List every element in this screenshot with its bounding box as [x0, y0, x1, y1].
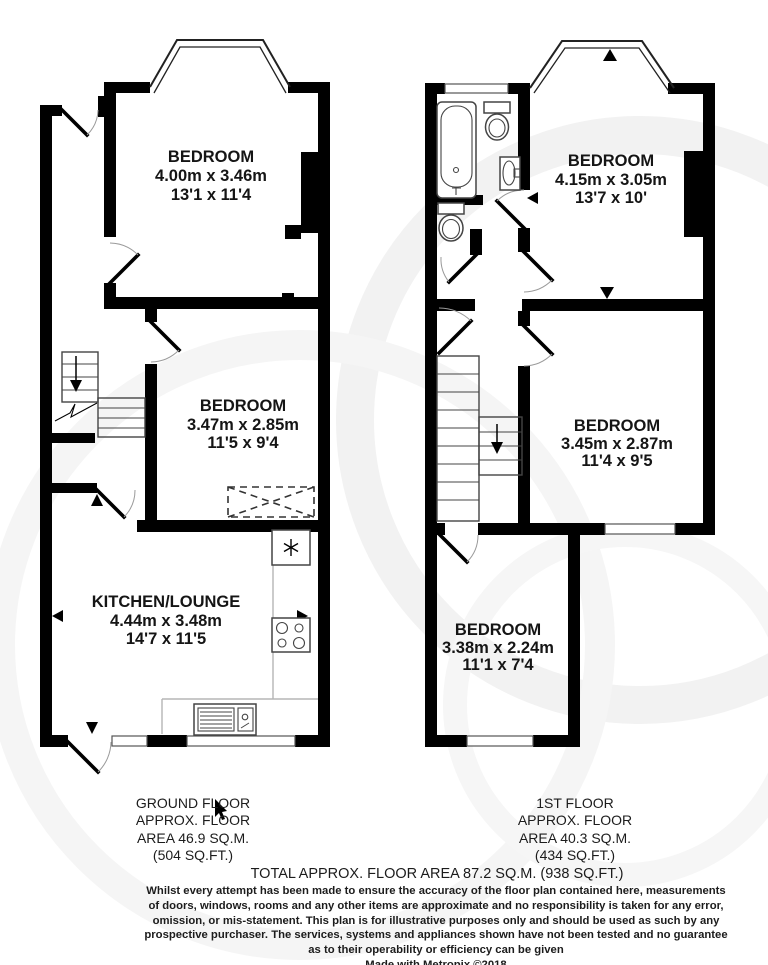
measure-marker-up: [603, 49, 617, 61]
disclaimer-line: as to their operability or efficiency ca…: [104, 943, 768, 958]
basin-icon: [500, 157, 520, 190]
floor-area-imperial: (504 SQ.FT.): [93, 847, 293, 864]
room-name: BEDROOM: [200, 397, 286, 415]
bay-window: [530, 41, 674, 93]
room-metric: 3.47m x 2.85m: [187, 416, 299, 434]
bedroom3-window: [467, 736, 533, 746]
fridge-icon: [272, 530, 310, 565]
landing-door: [439, 308, 471, 353]
bedroom2-door: [524, 326, 552, 366]
sink-icon: [194, 704, 256, 735]
room-imperial: 11'1 x 7'4: [462, 656, 534, 674]
floor-area-metric: AREA 40.3 SQ.M.: [475, 830, 675, 847]
total-area-label: TOTAL APPROX. FLOOR AREA 87.2 SQ.M. (938…: [117, 866, 757, 882]
room-name: BEDROOM: [455, 621, 541, 639]
kitchen-windows: [112, 736, 295, 746]
measure-marker-down: [600, 287, 614, 299]
room-imperial: 14'7 x 11'5: [126, 630, 206, 648]
wc-toilet-icon: [438, 203, 464, 241]
opening-marker-down: [86, 722, 98, 734]
wc-door: [441, 255, 476, 282]
room-name: BEDROOM: [168, 148, 254, 166]
room-imperial: 11'5 x 9'4: [207, 434, 279, 452]
disclaimer-line: of doors, windows, rooms and any other i…: [104, 899, 768, 914]
room-metric: 3.38m x 2.24m: [442, 639, 554, 657]
bathroom-window: [445, 84, 508, 93]
chimney-breast: [684, 151, 703, 237]
room-metric: 3.45m x 2.87m: [561, 435, 673, 453]
front-door: [62, 110, 98, 135]
ground-floor-plan: BEDROOM 4.00m x 3.46m 13'1 x 11'4 BEDROO…: [40, 40, 330, 772]
disclaimer-line: Whilst every attempt has been made to en…: [104, 884, 768, 899]
floor-title: 1ST FLOOR: [475, 795, 675, 812]
floor-area-imperial: (434 SQ.FT.): [475, 847, 675, 864]
floorplan-page: BEDROOM 4.00m x 3.46m 13'1 x 11'4 BEDROO…: [0, 0, 768, 965]
disclaimer-line: prospective purchaser. The services, sys…: [104, 928, 768, 943]
room-metric: 4.44m x 3.48m: [110, 612, 222, 630]
kitchen-exterior-door: [68, 722, 111, 772]
room-metric: 4.15m x 3.05m: [555, 171, 667, 189]
hob-icon: [272, 618, 310, 652]
floor-title: GROUND FLOOR: [93, 795, 293, 812]
bedroom3-door: [440, 535, 478, 562]
room-name: BEDROOM: [574, 417, 660, 435]
room-name: BEDROOM: [568, 152, 654, 170]
measure-marker-left: [52, 610, 63, 622]
stairs-down-arrow: [491, 442, 503, 454]
metropix-credit: Made with Metropix ©2018: [104, 958, 768, 965]
room-metric: 4.00m x 3.46m: [155, 167, 267, 185]
chimney-breast: [301, 152, 318, 233]
room-name: KITCHEN/LOUNGE: [92, 593, 241, 611]
floor-area-metric: AREA 46.9 SQ.M.: [93, 830, 293, 847]
ground-floor-area-label: GROUND FLOOR APPROX. FLOOR AREA 46.9 SQ.…: [93, 795, 293, 864]
floor-approx: APPROX. FLOOR: [475, 812, 675, 829]
bedroom2-window: [605, 524, 675, 534]
room-imperial: 13'1 x 11'4: [171, 186, 252, 204]
room-imperial: 13'7 x 10': [575, 189, 647, 207]
bathroom-door: [497, 190, 524, 228]
room-imperial: 11'4 x 9'5: [581, 452, 652, 470]
floor-approx: APPROX. FLOOR: [93, 812, 293, 829]
measure-marker-left: [527, 192, 538, 204]
disclaimer-line: omission, or mis-statement. This plan is…: [104, 914, 768, 929]
first-floor-area-label: 1ST FLOOR APPROX. FLOOR AREA 40.3 SQ.M. …: [475, 795, 675, 864]
wardrobe-dashed: [228, 487, 314, 517]
bedroom1-door: [110, 243, 138, 283]
bedroom1-door: [524, 252, 552, 292]
bay-window: [150, 40, 290, 93]
toilet-icon: [484, 102, 510, 140]
disclaimer-block: Whilst every attempt has been made to en…: [104, 884, 768, 965]
kitchen-inner-door: [91, 490, 135, 517]
bath-icon: [437, 102, 476, 198]
